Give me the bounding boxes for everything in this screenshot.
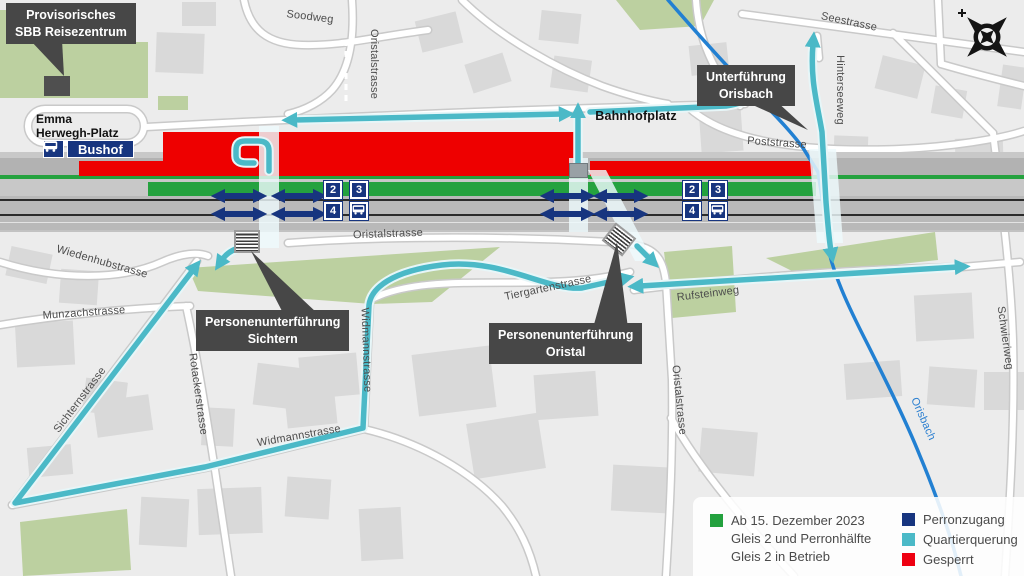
callout-personenunterfuehrung-oristal: Personenunterführung Oristal <box>489 323 642 364</box>
legend-swatch-red <box>902 553 915 566</box>
station-area-map: 2 3 4 2 3 4 Emma Herwegh-Platz Bushof So… <box>0 0 1024 576</box>
callout-unterfuehrung-orisbach: Unterführung Orisbach <box>697 65 795 106</box>
legend-swatch-cyan <box>902 533 915 546</box>
legend-swatch-green <box>710 514 723 527</box>
legend-item-gesperrt: Gesperrt <box>902 552 1018 567</box>
legend: Ab 15. Dezember 2023 Gleis 2 und Perronh… <box>693 497 1024 576</box>
callout-personenunterfuehrung-sichtern: Personenunterführung Sichtern <box>196 310 349 351</box>
legend-item-perronzugang: Perronzugang <box>902 512 1018 527</box>
callout-provisional-travel-centre: Provisorisches SBB Reisezentrum <box>6 3 136 44</box>
legend-swatch-navy <box>902 513 915 526</box>
legend-item-quartierquerung: Quartierquerung <box>902 532 1018 547</box>
callout-pointers <box>0 0 1024 576</box>
legend-item-open: Ab 15. Dezember 2023 Gleis 2 und Perronh… <box>710 512 902 576</box>
